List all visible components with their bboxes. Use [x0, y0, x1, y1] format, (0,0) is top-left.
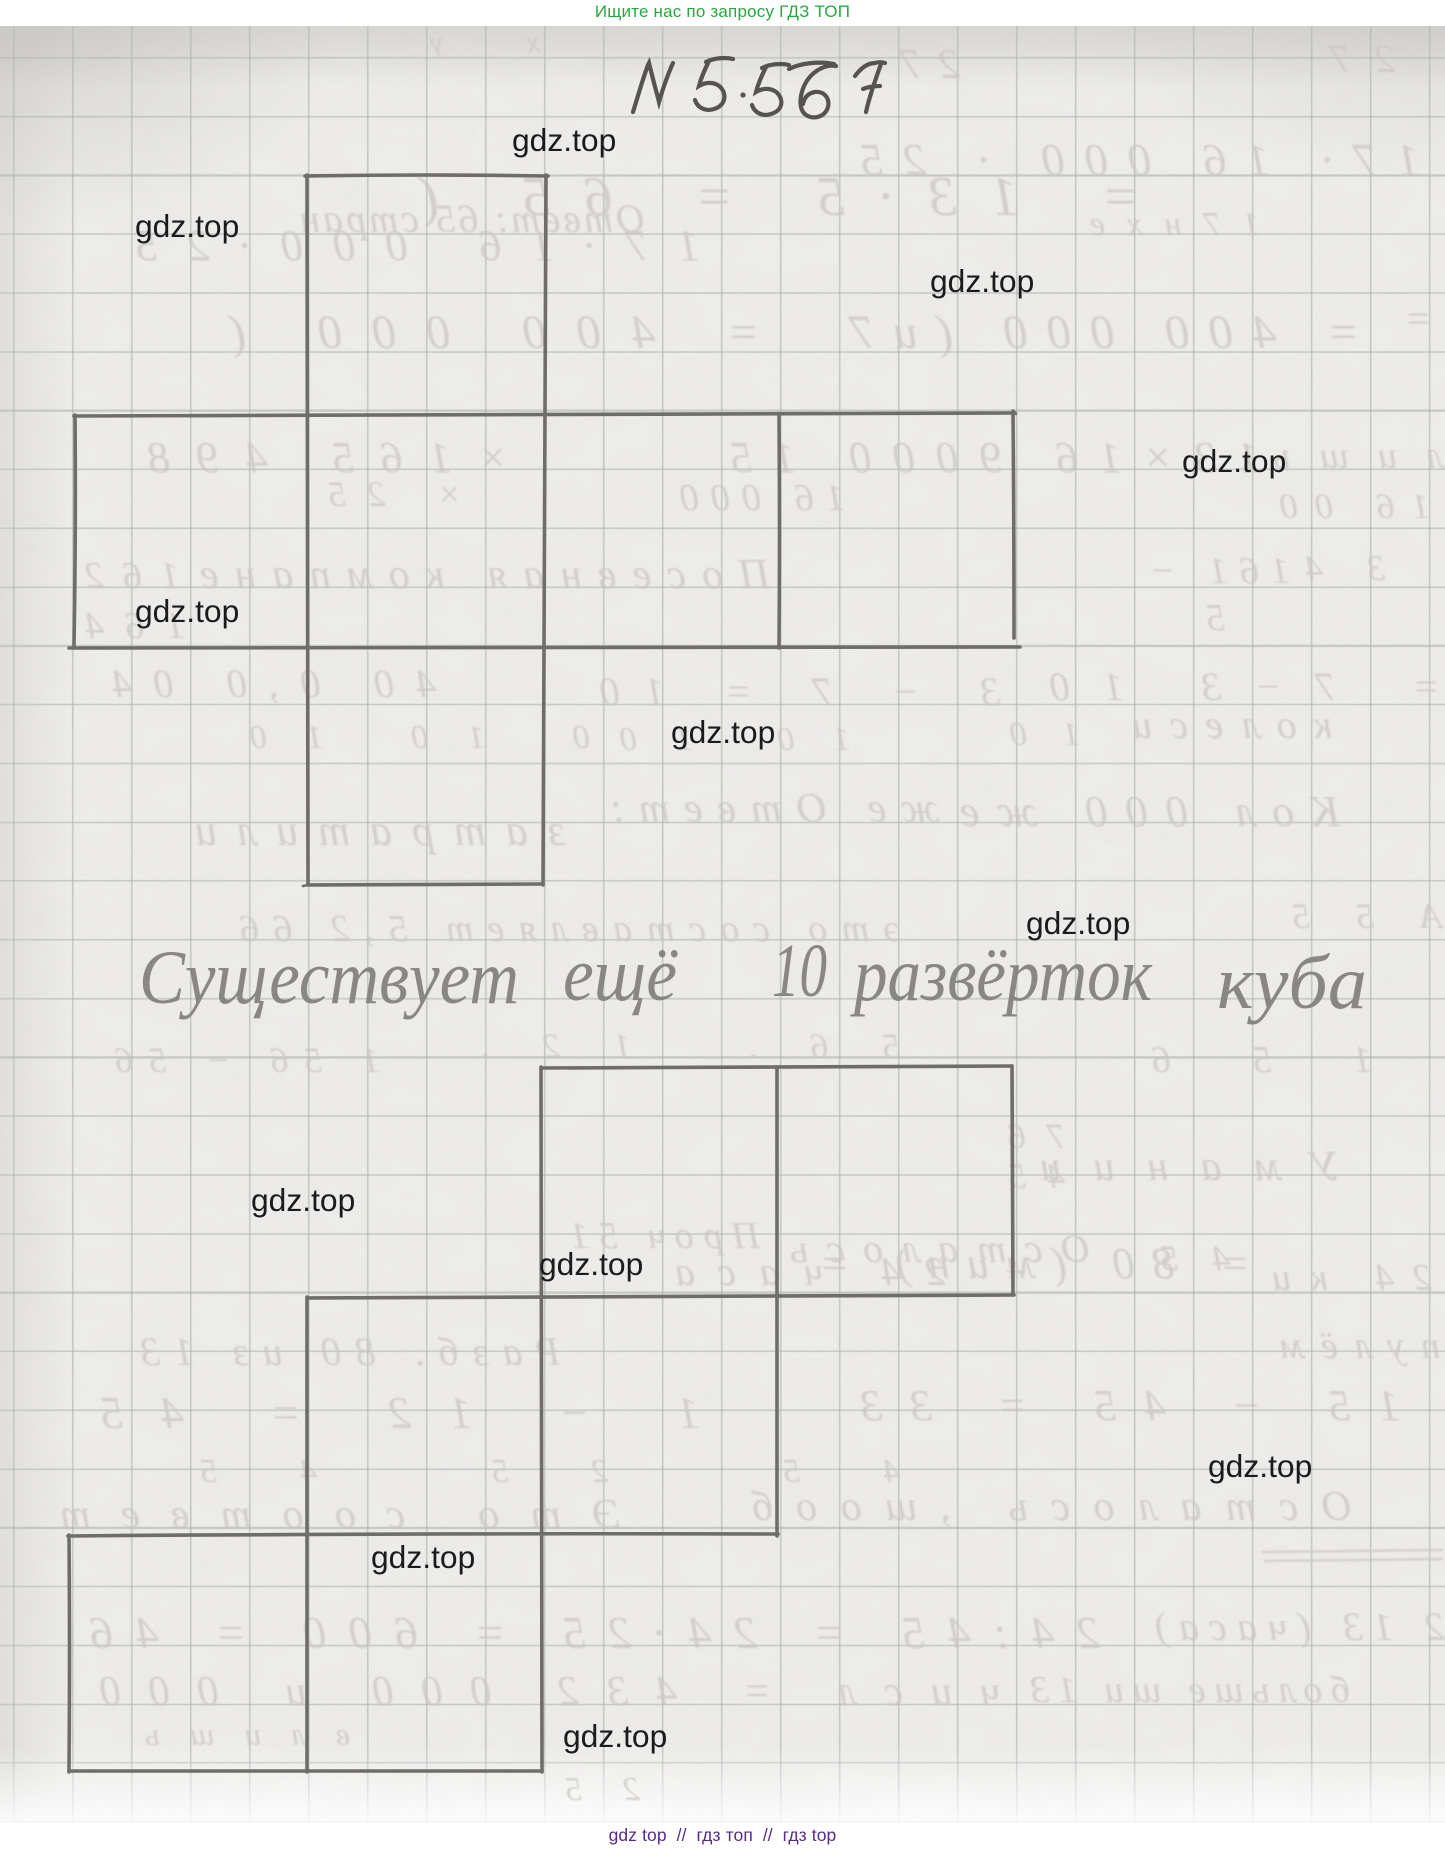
svg-text:Существует: Существует	[139, 936, 519, 1020]
svg-text:Осталось: Осталось	[790, 1226, 1090, 1271]
svg-text:16 00: 16 00	[1280, 486, 1430, 526]
svg-text:24:45 = 24·25 = 600 = 46: 24:45 = 24·25 = 600 = 46	[90, 1607, 1100, 1658]
svg-text:2 13 (часа): 2 13 (часа)	[1155, 1604, 1445, 1649]
svg-text:gdz.top: gdz.top	[930, 263, 1034, 299]
svg-text:27: 27	[898, 42, 960, 88]
svg-text:gdz.top: gdz.top	[371, 1539, 475, 1575]
svg-text:gdz.top: gdz.top	[1182, 443, 1286, 479]
svg-text:Умании: Умании	[1040, 1144, 1340, 1190]
svg-text:больше ши 13: больше ши 13	[1030, 1669, 1350, 1711]
svg-text:Посевная компане: Посевная компане	[200, 552, 771, 598]
svg-text:− 24 часа: − 24 часа	[675, 1249, 1030, 1294]
svg-text:влишь: влишь	[145, 1716, 350, 1752]
svg-text:затратили: затратили	[195, 806, 566, 855]
svg-text:А 5 5: А 5 5	[1292, 896, 1444, 936]
svg-text:=: =	[1405, 296, 1432, 341]
svg-text:развёрток: развёрток	[850, 933, 1154, 1017]
svg-text:gdz.top: gdz.top	[539, 1246, 643, 1282]
svg-text:56. 12.: 56. 12.	[480, 1026, 900, 1066]
svg-text:gdz.top: gdz.top	[251, 1182, 355, 1218]
svg-text:0 10 10: 0 10 10	[250, 719, 590, 756]
svg-text:пулём: пулём	[1280, 1325, 1440, 1367]
svg-text:13×16 9000 15: 13×16 9000 15	[730, 433, 1260, 482]
svg-text:15 − 45 = 33: 15 − 45 = 33	[860, 1381, 1400, 1430]
svg-text:= 400 000 (и7: = 400 000 (и7	[848, 306, 1360, 359]
svg-text:ещё: ещё	[563, 933, 678, 1017]
svg-text:куба: куба	[1217, 941, 1367, 1025]
svg-text:Разб. 80 из 13: Разб. 80 из 13	[140, 1329, 561, 1374]
svg-text:162: 162	[85, 555, 180, 597]
svg-text:45 25 45: 45 25 45	[200, 1453, 900, 1490]
svg-text:1 56 − 56: 1 56 − 56	[115, 1040, 380, 1080]
svg-text:х у: х у	[429, 26, 541, 59]
svg-text:1 − 12 = 45: 1 − 12 = 45	[100, 1387, 700, 1438]
svg-text:Кол 000 же: Кол 000 же	[960, 787, 1341, 836]
svg-text:числ = 432 000 и 000: числ = 432 000 и 000	[100, 1669, 1000, 1715]
svg-text:16 000: 16 000	[680, 477, 845, 519]
svg-text:1 5 6: 1 5 6	[1152, 1039, 1372, 1081]
svg-text:10: 10	[1010, 716, 1080, 753]
svg-text:gdz.top: gdz.top	[1026, 905, 1130, 941]
svg-text:34: 34	[1305, 548, 1386, 588]
svg-text:161 −: 161 −	[1150, 550, 1290, 592]
svg-text:же Ответ:: же Ответ:	[610, 786, 940, 832]
svg-text:gdz.top: gdz.top	[135, 208, 239, 244]
svg-text:gdz.top: gdz.top	[1208, 1448, 1312, 1484]
svg-text:лишь: лишь	[1273, 435, 1445, 477]
svg-text:27: 27	[1328, 36, 1395, 81]
svg-text:Осталось ,шооб: Осталось ,шооб	[750, 1484, 1352, 1530]
svg-text:5: 5	[1206, 597, 1225, 639]
svg-text:gdz.top: gdz.top	[135, 593, 239, 629]
svg-text:25: 25	[565, 1771, 640, 1808]
svg-text:gdz.top: gdz.top	[563, 1718, 667, 1754]
svg-text:3 − 7 = 10: 3 − 7 = 10	[600, 669, 1001, 714]
svg-text:10: 10	[772, 929, 827, 1013]
svg-text:gdz.top: gdz.top	[512, 122, 616, 158]
svg-text:40 0,0 04: 40 0,0 04	[112, 661, 436, 706]
svg-text:24 ки: 24 ки	[1272, 1257, 1432, 1299]
svg-text:gdz.top: gdz.top	[671, 714, 775, 750]
svg-text:Это соответ: Это соответ	[60, 1492, 620, 1538]
